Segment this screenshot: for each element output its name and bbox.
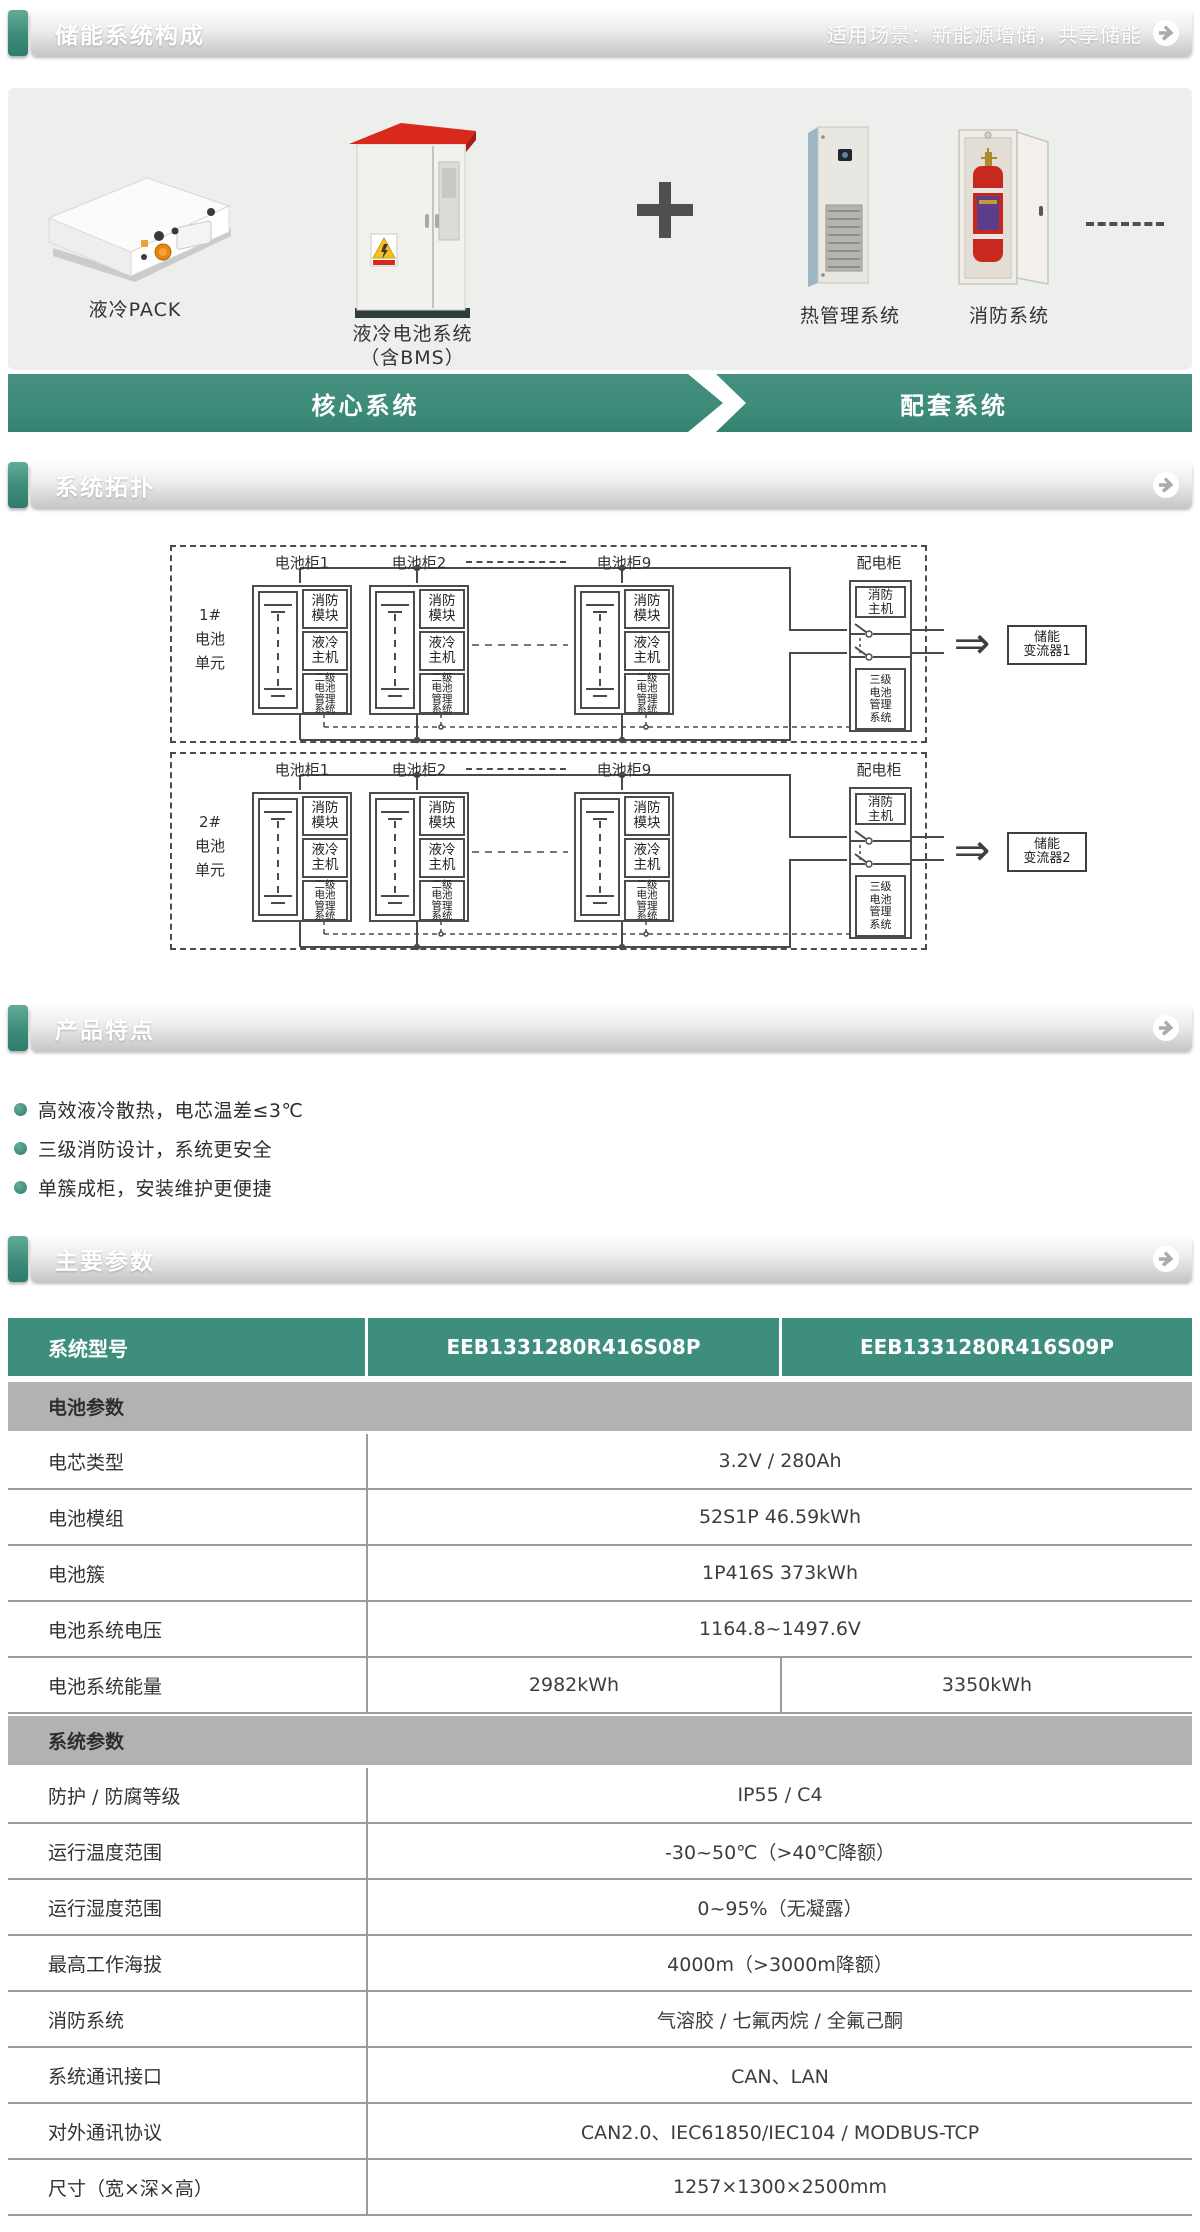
system-banner: 核心系统 配套系统 [0,374,1200,432]
label-line: 液冷 [312,636,339,651]
unit-label: 1#电池单元 [186,603,234,675]
bullet-icon [14,1103,27,1116]
label-line: 系统 [870,919,892,932]
section-header-composition: 储能系统构成 适用场景：新能源增储，共享储能 [0,10,1200,56]
battery-unit-2: 2#电池单元电池柜1电池柜2电池柜9消防模块液冷主机二级电池管理系统消防模块液冷… [170,752,927,950]
teal-tab [8,462,28,508]
param-value: 52S1P 46.59kWh [368,1490,1192,1544]
label-line: 主机 [312,651,339,666]
label-line: 消防 [868,588,893,602]
label-line: 管理 [870,906,892,919]
section-header-topology: 系统拓扑 [0,462,1200,508]
bms2-box: 二级电池管理系统 [419,880,465,921]
param-value: -30~50℃（>40℃降额） [368,1824,1192,1878]
section-title: 系统拓扑 [31,468,155,502]
table-row: 电池簇1P416S 373kWh [8,1546,1192,1602]
distribution-cabinet: 消防主机三级电池管理系统 [849,580,912,732]
label-line: 管理 [870,699,892,712]
param-label: 电池系统电压 [8,1602,368,1656]
bms2-box: 二级电池管理系统 [419,673,465,714]
label-line: 主机 [312,858,339,873]
label-line: 电池 [315,683,336,694]
arrow-circle-icon [1152,19,1180,47]
parameter-table: 系统型号EEB1331280R416S08PEEB1331280R416S09P… [8,1318,1192,2216]
label-line: 模块 [634,609,661,624]
section-header-parameters: 主要参数 [0,1236,1200,1282]
model-header-label: 系统型号 [8,1318,368,1376]
table-row: 运行湿度范围0~95%（无凝露） [8,1880,1192,1936]
arrow-circle-icon [1152,1245,1180,1273]
param-label: 运行温度范围 [8,1824,368,1878]
label-line: 储能 [1034,838,1060,853]
param-value: 3350kWh [782,1658,1192,1712]
label-line: 消防 [312,594,339,609]
header-bar: 产品特点 [31,1005,1192,1051]
param-label: 尺寸（宽×深×高） [8,2160,368,2214]
label-line: 主机 [634,858,661,873]
battery-cabinet: 消防模块液冷主机二级电池管理系统 [574,585,674,715]
fire-system-image [955,122,1052,292]
battery-rack-symbol [258,591,298,709]
fire-module-box: 消防模块 [419,796,465,836]
junction-dot [866,861,872,867]
cooling-host-box: 液冷主机 [302,631,348,671]
param-value: 3.2V / 280Ah [368,1434,1192,1488]
cooling-host-box: 液冷主机 [419,838,465,878]
table-row: 防护 / 防腐等级IP55 / C4 [8,1768,1192,1824]
cooling-host-box: 液冷主机 [624,838,670,878]
header-bar: 储能系统构成 适用场景：新能源增储，共享储能 [31,10,1192,56]
label-line: 系统 [315,911,336,922]
label-line: 电池 [432,683,453,694]
distribution-cabinet: 消防主机三级电池管理系统 [849,787,912,939]
label-line: 电池 [315,890,336,901]
bms3-box: 三级电池管理系统 [855,875,906,937]
product-label-fire: 消防系统 [929,304,1089,328]
continuation-dashes [466,561,566,563]
table-row: 运行温度范围-30~50℃（>40℃降额） [8,1824,1192,1880]
param-label: 电池系统能量 [8,1658,368,1712]
fire-module-box: 消防模块 [302,589,348,629]
param-label: 最高工作海拔 [8,1936,368,1990]
label-line: 模块 [634,816,661,831]
param-value: 1164.8~1497.6V [368,1602,1192,1656]
fire-module-box: 消防模块 [624,589,670,629]
label-line: 单元 [186,858,234,882]
label-line: 液冷 [312,843,339,858]
label-line: 消防 [868,795,893,809]
list-item: 高效液冷散热，电芯温差≤3℃ [14,1090,303,1129]
label-line: 三级 [870,674,892,687]
model-name: EEB1331280R416S09P [782,1318,1192,1376]
param-label: 防护 / 防腐等级 [8,1768,368,1822]
dist-cabinet-label: 配电柜 [834,759,924,780]
table-section-row: 系统参数 [8,1714,1192,1768]
param-label: 电池簇 [8,1546,368,1600]
core-system-banner: 核心系统 [8,374,723,432]
battery-rack-symbol [375,798,415,916]
arrow-circle-icon [1152,1014,1180,1042]
table-row: 电池模组52S1P 46.59kWh [8,1490,1192,1546]
bms2-box: 二级电池管理系统 [302,880,348,921]
label-line: 电池 [637,683,658,694]
liquid-cooled-pack-image [35,160,235,300]
label-line: 系统 [432,911,453,922]
label-line: 主机 [429,651,456,666]
label-line: 模块 [312,609,339,624]
system-topology-diagram: 1#电池单元电池柜1电池柜2电池柜9消防模块液冷主机二级电池管理系统消防模块液冷… [0,530,1200,980]
product-label-thermal: 热管理系统 [770,304,930,328]
battery-rack-symbol [375,591,415,709]
list-item: 三级消防设计，系统更安全 [14,1129,303,1168]
bms2-box: 二级电池管理系统 [624,673,670,714]
support-system-banner: 配套系统 [716,374,1192,432]
cabinet-label: 电池柜1 [257,759,347,780]
param-value: IP55 / C4 [368,1768,1192,1822]
header-bar: 系统拓扑 [31,462,1192,508]
param-label: 系统通讯接口 [8,2048,368,2102]
label-line: 主机 [868,602,893,616]
arrow-circle-icon [1152,471,1180,499]
section-header-features: 产品特点 [0,1005,1200,1051]
label-line: 储能 [1034,631,1060,646]
param-label: 对外通讯协议 [8,2104,368,2158]
table-row: 系统通讯接口CAN、LAN [8,2048,1192,2104]
table-header-row: 系统型号EEB1331280R416S08PEEB1331280R416S09P [8,1318,1192,1376]
battery-cabinet: 消防模块液冷主机二级电池管理系统 [369,585,469,715]
product-composition-band: 液冷PACK 液冷电池系统 （含BMS） [8,88,1192,370]
breaker-switch-icon [851,622,910,668]
label-line: 消防 [429,594,456,609]
label-line: 主机 [634,651,661,666]
battery-cabinet: 消防模块液冷主机二级电池管理系统 [369,792,469,922]
label-line: 电池 [186,627,234,651]
label-line: 液冷 [634,636,661,651]
fire-module-box: 消防模块 [302,796,348,836]
pcs-box: 储能变流器2 [1007,832,1087,872]
table-row: 电池系统能量2982kWh3350kWh [8,1658,1192,1714]
label-line: 变流器1 [1023,645,1070,660]
param-label: 消防系统 [8,1992,368,2046]
label-line: 电池 [186,834,234,858]
label-line: 系统 [432,704,453,715]
label-line: 液冷 [429,636,456,651]
param-label: 电芯类型 [8,1434,368,1488]
battery-string-icon [377,800,413,914]
battery-unit-1: 1#电池单元电池柜1电池柜2电池柜9消防模块液冷主机二级电池管理系统消防模块液冷… [170,545,927,743]
unit-label: 2#电池单元 [186,810,234,882]
double-arrow-icon: ⇒ [944,826,1000,874]
continuation-dashes [466,768,566,770]
junction-dot [866,654,872,660]
model-name: EEB1331280R416S08P [368,1318,782,1376]
label-line: 系统 [870,712,892,725]
label-line: 单元 [186,651,234,675]
label-line: 模块 [312,816,339,831]
param-value: 1P416S 373kWh [368,1546,1192,1600]
label-line: 液冷 [634,843,661,858]
label-line: 三级 [870,881,892,894]
table-row: 对外通讯协议CAN2.0、IEC61850/IEC104 / MODBUS-TC… [8,2104,1192,2160]
bullet-icon [14,1142,27,1155]
product-label-battery-system: 液冷电池系统 （含BMS） [325,322,500,370]
fire-host-box: 消防主机 [855,793,906,825]
product-label-pack: 液冷PACK [55,298,215,322]
page-title: 储能系统构成 [31,16,205,50]
param-value: CAN2.0、IEC61850/IEC104 / MODBUS-TCP [368,2104,1192,2158]
label-line: 消防 [634,801,661,816]
param-value: CAN、LAN [368,2048,1192,2102]
teal-tab [8,1236,28,1282]
bms2-box: 二级电池管理系统 [302,673,348,714]
datasheet-page: 储能系统构成 适用场景：新能源增储，共享储能 [0,0,1200,2232]
cooling-host-box: 液冷主机 [302,838,348,878]
battery-string-icon [260,800,296,914]
cabinet-label: 电池柜2 [374,552,464,573]
cooling-host-box: 液冷主机 [419,631,465,671]
label-line: 主机 [868,809,893,823]
label-line: 变流器2 [1023,852,1070,867]
header-bar: 主要参数 [31,1236,1192,1282]
label-line: 消防 [634,594,661,609]
table-row: 最高工作海拔4000m（>3000m降额） [8,1936,1192,1992]
cooling-host-box: 液冷主机 [624,631,670,671]
section-title: 主要参数 [31,1242,155,1276]
table-row: 电芯类型3.2V / 280Ah [8,1434,1192,1490]
battery-rack-symbol [580,591,620,709]
double-arrow-icon: ⇒ [944,619,1000,667]
battery-cabinet: 消防模块液冷主机二级电池管理系统 [574,792,674,922]
label-line: 模块 [429,816,456,831]
label-line: 系统 [637,911,658,922]
label-line: 消防 [312,801,339,816]
fire-host-box: 消防主机 [855,586,906,618]
junction-dot [866,631,872,637]
feature-list: 高效液冷散热，电芯温差≤3℃ 三级消防设计，系统更安全 单簇成柜，安装维护更便捷 [14,1090,303,1207]
battery-cabinet: 消防模块液冷主机二级电池管理系统 [252,585,352,715]
param-value: 1257×1300×2500mm [368,2160,1192,2214]
param-value: 2982kWh [368,1658,782,1712]
param-label: 电池模组 [8,1490,368,1544]
thermal-system-image [804,125,872,291]
battery-string-icon [260,593,296,707]
bms2-box: 二级电池管理系统 [624,880,670,921]
section-title: 产品特点 [31,1011,155,1045]
label-line: 模块 [429,609,456,624]
table-row: 尺寸（宽×深×高）1257×1300×2500mm [8,2160,1192,2216]
wire [855,624,866,632]
battery-system-image [345,118,480,330]
table-row: 电池系统电压1164.8~1497.6V [8,1602,1192,1658]
bullet-icon [14,1181,27,1194]
label-line: 系统 [315,704,336,715]
label-line: 系统 [637,704,658,715]
list-item: 单簇成柜，安装维护更便捷 [14,1168,303,1207]
cabinet-label: 电池柜9 [579,759,669,780]
battery-rack-symbol [258,798,298,916]
battery-string-icon [582,593,618,707]
label-line: 电池 [637,890,658,901]
label-line: 消防 [429,801,456,816]
teal-tab [8,10,28,56]
table-row: 消防系统气溶胶 / 七氟丙烷 / 全氟己酮 [8,1992,1192,2048]
plus-icon [637,182,693,238]
breaker-switch-icon [851,829,910,875]
label-line: 2# [186,810,234,834]
junction-dot [866,838,872,844]
wire [855,831,866,839]
label-line: 1# [186,603,234,627]
label-line: 液冷 [429,843,456,858]
pcs-box: 储能变流器1 [1007,625,1087,665]
label-line: 主机 [429,858,456,873]
teal-tab [8,1005,28,1051]
cabinet-label: 电池柜1 [257,552,347,573]
param-value: 气溶胶 / 七氟丙烷 / 全氟己酮 [368,1992,1192,2046]
battery-cabinet: 消防模块液冷主机二级电池管理系统 [252,792,352,922]
bms3-box: 三级电池管理系统 [855,668,906,730]
fire-module-box: 消防模块 [624,796,670,836]
dist-cabinet-label: 配电柜 [834,552,924,573]
scenario-text: 适用场景：新能源增储，共享储能 [827,19,1142,48]
table-section-row: 电池参数 [8,1380,1192,1434]
fire-module-box: 消防模块 [419,589,465,629]
param-value: 4000m（>3000m降额） [368,1936,1192,1990]
param-label: 运行湿度范围 [8,1880,368,1934]
label-line: 电池 [432,890,453,901]
cabinet-label: 电池柜9 [579,552,669,573]
battery-string-icon [582,800,618,914]
battery-rack-symbol [580,798,620,916]
battery-string-icon [377,593,413,707]
cabinet-label: 电池柜2 [374,759,464,780]
param-value: 0~95%（无凝露） [368,1880,1192,1934]
ellipsis-dashes [1086,222,1164,226]
